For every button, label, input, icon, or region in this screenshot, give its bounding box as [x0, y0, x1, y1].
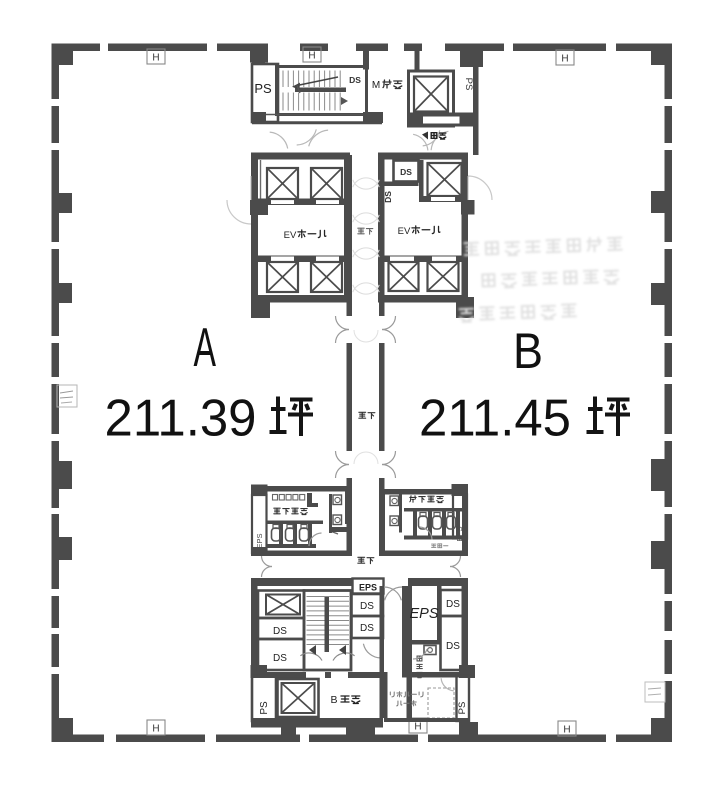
svg-text:DS: DS [273, 653, 287, 664]
svg-text:DS: DS [273, 626, 287, 637]
svg-text:H: H [563, 725, 570, 736]
svg-text:H: H [308, 51, 315, 62]
svg-text:B: B [330, 694, 337, 706]
svg-text:H: H [152, 724, 159, 735]
svg-text:EPS: EPS [359, 583, 377, 593]
svg-text:211.39: 211.39 [105, 389, 257, 447]
svg-text:H: H [561, 54, 568, 65]
svg-text:DS: DS [446, 599, 460, 610]
svg-text:DS: DS [349, 75, 361, 85]
svg-text:EPS: EPS [255, 533, 264, 548]
svg-text:DS: DS [360, 601, 374, 612]
svg-text:H: H [414, 722, 421, 733]
svg-text:A: A [194, 316, 217, 378]
svg-text:PS: PS [254, 81, 272, 96]
svg-text:EV: EV [284, 230, 297, 241]
svg-text:H: H [152, 53, 159, 64]
svg-text:PS: PS [463, 78, 474, 91]
svg-text:PS: PS [457, 702, 468, 715]
svg-text:211.45: 211.45 [419, 389, 571, 447]
svg-text:M: M [372, 80, 380, 91]
svg-text:PS: PS [259, 701, 270, 715]
svg-text:EPS: EPS [409, 606, 438, 622]
svg-text:DS: DS [446, 641, 460, 652]
svg-text:EV: EV [398, 226, 411, 237]
svg-text:DS: DS [400, 167, 412, 177]
svg-text:DS: DS [360, 623, 374, 634]
svg-text:B: B [513, 323, 543, 379]
